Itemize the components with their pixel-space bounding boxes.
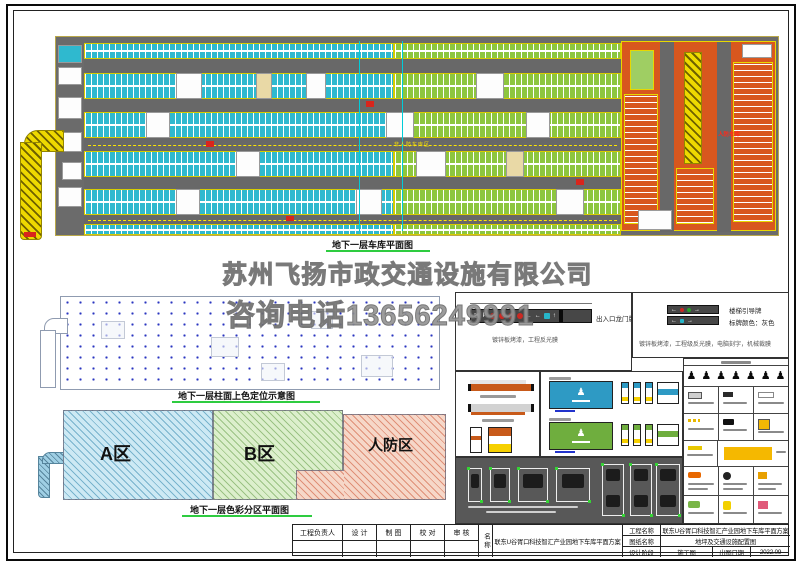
caption-bar (480, 395, 516, 398)
sign-text-bar (572, 400, 590, 402)
gantry-sign-label: 出入口龙门牌 (596, 313, 635, 323)
non-civil-defense-label: 非人防车库区 (394, 141, 430, 148)
tb-empty (411, 541, 445, 557)
tb-date-label: 出图日期 (713, 547, 751, 557)
drive-lane-dashed (84, 215, 621, 224)
tb-stage-value: 施工图 (661, 547, 713, 557)
drive-lane (84, 59, 621, 73)
column-wrap-blue (645, 382, 653, 404)
watermark-phone: 咨询电话13656249991 (226, 292, 534, 334)
stair-core (506, 151, 524, 177)
zone-ramp (684, 52, 702, 164)
red-dot-icon (680, 308, 684, 312)
cyan-chip-icon (544, 313, 550, 319)
wall-band-section (468, 384, 534, 391)
plan-marker (366, 101, 374, 107)
grid-line (402, 41, 403, 231)
parking-plan: 非人防车库区 人防车库 (55, 36, 779, 236)
stair-core (236, 151, 260, 177)
tb-project-value: 联东U谷胥口科技智汇产业园地下车库平面方案 (661, 525, 790, 536)
wall-section-panel (455, 371, 540, 457)
column-wrap-green (633, 424, 641, 446)
plan-room (58, 97, 82, 119)
stall-band (84, 73, 621, 99)
cyan-chip-icon (680, 319, 684, 323)
zone-lane (660, 42, 674, 232)
drive-lane (84, 99, 621, 112)
stall-band (84, 189, 621, 215)
column-wrap-green (645, 424, 653, 446)
stair-core (176, 73, 202, 99)
caption-bar (549, 418, 571, 421)
zone-room (742, 44, 772, 58)
arrow-icon: ← (535, 313, 541, 319)
grid-line (359, 41, 360, 231)
floor-stripe (471, 412, 525, 415)
tb-empty (377, 541, 411, 557)
blue-underline (555, 410, 575, 412)
tb-col-check: 校 对 (411, 525, 445, 541)
panel-caption-bar (468, 506, 578, 508)
title-block: 工程负责人 设 计 制 图 校 对 审 核 名称 联东U谷胥口科技智汇产业园地下… (292, 524, 789, 556)
legend-table: ♟♟♟♟♟♟♟ (683, 358, 789, 524)
wall-band-blue (657, 382, 679, 404)
stair-sign-spec: 镀锌板烤漆，工程级反光膜，电脑刻字，机械裁膜 (639, 339, 771, 348)
arrow-icon: ← (671, 318, 677, 324)
column-elevation-banded (488, 427, 512, 453)
column-wrap-green (621, 424, 629, 446)
stair-core (146, 112, 170, 138)
column-diagram-underline (172, 401, 320, 403)
arrow-icon: ← (671, 307, 677, 313)
person-icon: ♟ (577, 388, 586, 398)
zone-diagram-underline (182, 515, 312, 517)
ghost-room (261, 363, 285, 381)
tb-date-value: 2022.09 (751, 547, 790, 557)
caption-bar (549, 377, 571, 380)
plan-room (62, 162, 82, 180)
ghost-room (211, 337, 239, 357)
gantry-sign-note: 镀锌板烤漆，工程反光膜 (492, 335, 558, 344)
plan-room (58, 187, 82, 207)
stair-sign-row2: ← → (667, 316, 719, 325)
plan-marker (576, 179, 584, 185)
tb-drawing-value: 地坪及交通设施配置图 (661, 536, 790, 547)
stair-core (556, 189, 584, 215)
tb-col-design: 设 计 (343, 525, 377, 541)
wall-band-green (657, 424, 679, 446)
civil-defense-label: 人防车库 (718, 130, 740, 138)
column-elevation (470, 427, 482, 453)
zone-stalls (624, 94, 658, 224)
zone-room (638, 210, 672, 230)
zone-sign-panel: ♟ ♟ (540, 371, 683, 457)
tb-project-label: 工程名称 (623, 525, 661, 536)
floor-slab-section (468, 404, 534, 412)
zone-b-sign: ♟ (549, 422, 613, 450)
tb-col-manager: 工程负责人 (293, 525, 343, 541)
tb-col-review: 审 核 (445, 525, 479, 541)
stair-core (526, 112, 550, 138)
zone-b-label: B区 (244, 440, 275, 466)
stair-sign-row1: ← → (667, 305, 719, 314)
stall-row-bottom (84, 224, 621, 235)
stair-core (256, 73, 272, 99)
stall-marking-panel (455, 457, 683, 524)
stair-core (176, 189, 200, 215)
zone-a-area (63, 410, 213, 500)
plan-title-underline (326, 250, 430, 252)
zone-green-room (630, 50, 654, 90)
person-icon: ♟ (686, 371, 696, 382)
plan-room (58, 67, 82, 85)
zone-defense-label: 人防区 (368, 434, 413, 455)
arrow-icon: → (687, 318, 693, 324)
stair-core (306, 73, 326, 99)
caption-bar (482, 419, 514, 422)
green-dot-icon (687, 308, 691, 312)
watermark-company: 苏州飞扬市政交通设施有限公司 (222, 255, 593, 291)
tb-drawing-label: 图纸名称 (623, 536, 661, 547)
column-diagram-ramp-outline (40, 330, 56, 388)
zone-stalls (733, 62, 773, 222)
panel-caption-bar (486, 511, 556, 513)
up-arrow-icon: ↑ (553, 313, 556, 319)
plan-marker (206, 141, 214, 147)
tb-empty (445, 541, 479, 557)
tb-name-label: 名称 (479, 525, 493, 557)
tb-col-draft: 制 图 (377, 525, 411, 541)
stall-row-top (84, 43, 621, 59)
tb-empty (293, 541, 343, 557)
ramp-end-marker (24, 232, 36, 237)
tb-project-name: 联东U谷胥口科技智汇产业园地下车库平面方案 (493, 525, 623, 557)
tb-empty (343, 541, 377, 557)
plan-marker (286, 216, 294, 221)
zone-diagram: A区 B区 人防区 (38, 408, 446, 502)
stair-sign-label: 楼梯引导牌 (729, 305, 762, 315)
column-wrap-blue (633, 382, 641, 404)
sign-text-bar (572, 441, 590, 443)
column-wrap-blue (621, 382, 629, 404)
drive-lane (84, 177, 621, 189)
legend-pictograms: ♟♟♟♟♟♟♟ (684, 366, 788, 387)
stair-sign-panel: ← → ← → 楼梯引导牌 标牌颜色：灰色 镀锌板烤漆，工程级反光膜，电脑刻字，… (632, 292, 789, 358)
person-icon: ♟ (577, 429, 586, 439)
ghost-room (101, 321, 125, 339)
stair-core (416, 151, 446, 177)
stair-core (386, 112, 414, 138)
drawing-sheet: 非人防车库区 人防车库 地下一层车库平面图 苏州飞扬市政交通设施有限公司 咨询电… (0, 0, 800, 563)
arrow-icon: → (694, 307, 700, 313)
tb-stage-label: 设计阶段 (623, 547, 661, 557)
civil-defense-zone: 人防车库 (621, 41, 776, 231)
stair-sign-color-note: 标牌颜色：灰色 (729, 317, 775, 327)
ghost-room (361, 355, 393, 377)
sign-end-cap (559, 310, 563, 322)
zone-defense-extension (296, 470, 344, 500)
zone-defense-area (343, 414, 446, 500)
drive-lane-dashed (84, 138, 621, 151)
stall-band (84, 151, 621, 177)
zone-a-sign: ♟ (549, 381, 613, 409)
entry-ramp-vertical (20, 142, 42, 240)
zone-a-label: A区 (100, 440, 131, 466)
zone-stalls (676, 168, 714, 224)
blue-underline (555, 451, 575, 453)
stair-core (476, 73, 504, 99)
plan-room (58, 45, 82, 63)
